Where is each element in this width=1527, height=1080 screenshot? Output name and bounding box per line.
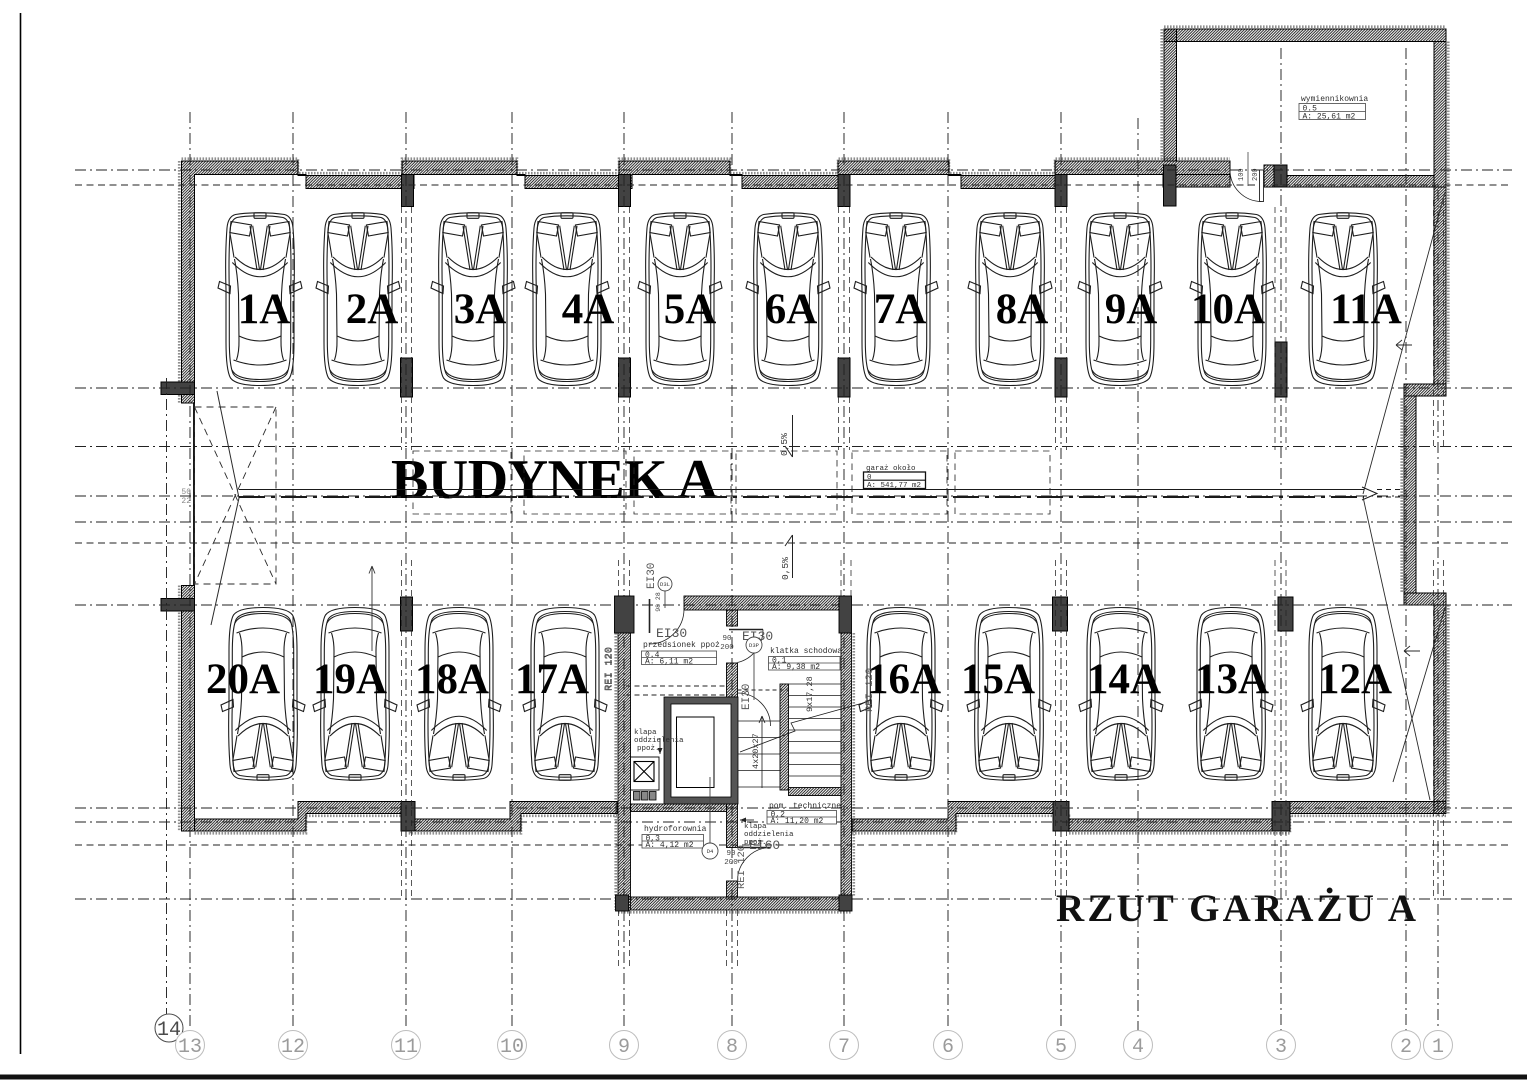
svg-text:13: 13	[178, 1036, 202, 1059]
svg-text:17A: 17A	[515, 656, 589, 703]
svg-text:9x17,28: 9x17,28	[805, 676, 815, 712]
svg-text:D3P: D3P	[749, 642, 759, 649]
svg-text:przedsionek ppoż: przedsionek ppoż	[643, 641, 720, 650]
svg-text:98 28: 98 28	[655, 592, 662, 612]
svg-text:200: 200	[1252, 168, 1260, 181]
svg-text:5A: 5A	[664, 286, 717, 333]
svg-text:4A: 4A	[562, 286, 615, 333]
svg-text:90: 90	[722, 635, 732, 643]
svg-text:20A: 20A	[206, 656, 280, 703]
svg-text:EI30: EI30	[646, 563, 658, 589]
svg-text:klatka schodowa: klatka schodowa	[770, 647, 842, 656]
svg-text:15A: 15A	[961, 656, 1035, 703]
svg-text:12A: 12A	[1318, 656, 1392, 703]
svg-text:hydroforownia: hydroforownia	[644, 825, 707, 834]
svg-text:oddzielenia: oddzielenia	[744, 831, 794, 839]
svg-text:3: 3	[1275, 1036, 1287, 1059]
svg-text:9: 9	[618, 1036, 630, 1059]
svg-text:11: 11	[394, 1036, 418, 1059]
svg-text:2: 2	[1400, 1036, 1412, 1059]
svg-text:wymiennikownia: wymiennikownia	[1301, 95, 1368, 104]
svg-text:4: 4	[1132, 1036, 1144, 1059]
svg-text:10A: 10A	[1191, 286, 1265, 333]
svg-text:8A: 8A	[996, 286, 1049, 333]
svg-text:RZUT GARAŻU A: RZUT GARAŻU A	[1056, 886, 1416, 930]
svg-text:6A: 6A	[765, 286, 818, 333]
svg-text:7A: 7A	[874, 286, 927, 333]
svg-text:REI 120: REI 120	[603, 647, 615, 691]
svg-text:7: 7	[838, 1036, 850, 1059]
svg-text:2A: 2A	[346, 286, 399, 333]
svg-text:8: 8	[726, 1036, 738, 1059]
svg-text:3A: 3A	[454, 286, 507, 333]
svg-text:D3L: D3L	[660, 581, 670, 588]
svg-text:18A: 18A	[415, 656, 489, 703]
svg-text:A: 9,38 m2: A: 9,38 m2	[772, 663, 820, 672]
svg-text:1: 1	[1432, 1036, 1444, 1059]
svg-text:A: 25,61 m2: A: 25,61 m2	[1303, 113, 1356, 122]
svg-text:6: 6	[942, 1036, 954, 1059]
svg-text:13A: 13A	[1195, 656, 1269, 703]
svg-text:EI30: EI30	[656, 626, 687, 641]
svg-text:50: 50	[181, 488, 191, 497]
svg-text:1A: 1A	[238, 286, 291, 333]
svg-text:16A: 16A	[867, 656, 941, 703]
svg-text:200: 200	[720, 644, 734, 652]
svg-text:200: 200	[724, 859, 738, 867]
svg-text:ppoż.: ppoż.	[744, 839, 767, 847]
svg-text:D4: D4	[707, 848, 714, 855]
svg-text:klapa: klapa	[744, 823, 767, 831]
svg-text:REI 120: REI 120	[864, 668, 876, 712]
svg-text:A: 541,77 m2: A: 541,77 m2	[867, 482, 921, 490]
svg-text:9A: 9A	[1105, 286, 1158, 333]
svg-text:0,5%: 0,5%	[779, 433, 790, 456]
svg-text:22: 22	[181, 497, 191, 506]
svg-text:100: 100	[1238, 168, 1246, 181]
svg-text:REI 120: REI 120	[736, 845, 748, 889]
svg-text:A: 11,20 m2: A: 11,20 m2	[771, 817, 824, 826]
svg-text:90: 90	[726, 850, 736, 858]
svg-text:0,5%: 0,5%	[780, 557, 791, 580]
svg-text:ppoż.: ppoż.	[637, 745, 660, 753]
svg-text:EI30: EI30	[741, 684, 753, 710]
svg-text:19A: 19A	[313, 656, 387, 703]
svg-text:BUDYNEK A: BUDYNEK A	[391, 449, 719, 511]
svg-text:10: 10	[500, 1036, 524, 1059]
svg-text:12: 12	[281, 1036, 305, 1059]
svg-text:5: 5	[1055, 1036, 1067, 1059]
svg-text:A: 4,12 m2: A: 4,12 m2	[646, 841, 694, 850]
svg-text:A: 6,11 m2: A: 6,11 m2	[645, 658, 693, 667]
svg-text:oddzielenia: oddzielenia	[634, 737, 684, 745]
svg-text:klapa: klapa	[634, 729, 657, 737]
svg-text:0: 0	[867, 474, 872, 482]
svg-text:14A: 14A	[1087, 656, 1161, 703]
svg-text:4x20x27: 4x20x27	[751, 733, 761, 769]
svg-text:11A: 11A	[1330, 286, 1402, 333]
